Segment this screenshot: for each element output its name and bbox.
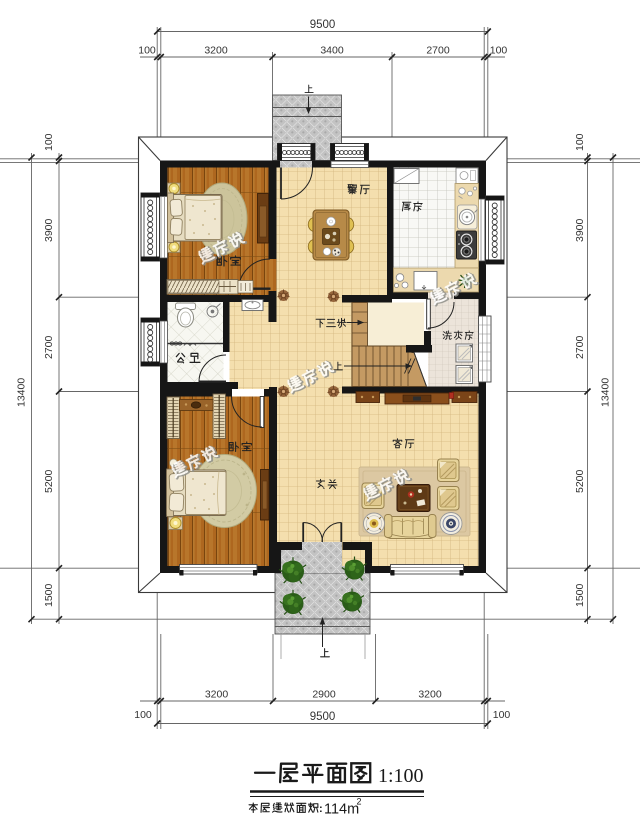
- svg-text:100: 100: [43, 133, 55, 151]
- svg-text:13400: 13400: [16, 378, 28, 407]
- svg-text:3200: 3200: [205, 689, 229, 701]
- svg-text:100: 100: [574, 133, 586, 151]
- svg-text:3400: 3400: [320, 45, 344, 57]
- svg-text:2: 2: [357, 797, 362, 807]
- svg-text:1500: 1500: [43, 583, 55, 607]
- svg-text:3200: 3200: [418, 689, 442, 701]
- svg-text:3200: 3200: [204, 45, 228, 57]
- svg-text:1500: 1500: [574, 583, 586, 607]
- svg-text:2900: 2900: [312, 689, 336, 701]
- svg-text:13400: 13400: [600, 378, 612, 407]
- svg-text:2700: 2700: [43, 335, 55, 359]
- svg-text:114m: 114m: [324, 802, 359, 818]
- svg-text:2700: 2700: [574, 335, 586, 359]
- svg-text:5200: 5200: [574, 469, 586, 493]
- svg-text:3900: 3900: [574, 218, 586, 242]
- svg-text::: :: [319, 803, 323, 815]
- svg-text:5200: 5200: [43, 469, 55, 493]
- svg-text:100: 100: [490, 45, 508, 57]
- svg-text:100: 100: [493, 709, 511, 721]
- svg-text:2700: 2700: [426, 45, 450, 57]
- svg-text:3900: 3900: [43, 218, 55, 242]
- svg-text:100: 100: [138, 45, 156, 57]
- svg-text:1:100: 1:100: [378, 765, 424, 787]
- svg-text:100: 100: [134, 709, 152, 721]
- svg-text:9500: 9500: [310, 19, 336, 31]
- svg-text:9500: 9500: [310, 711, 336, 723]
